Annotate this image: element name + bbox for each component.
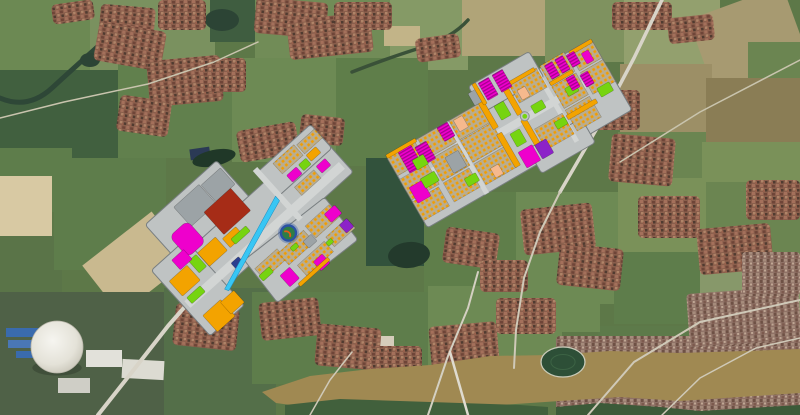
stadium-infield — [551, 355, 575, 370]
village-area — [334, 2, 392, 30]
terrain-patch — [86, 350, 122, 367]
village-area — [158, 0, 206, 30]
satellite-map-canvas[interactable] — [0, 0, 800, 415]
village-area — [496, 298, 556, 334]
village-area — [116, 95, 173, 138]
village-area — [667, 14, 715, 45]
terrain-patch — [0, 176, 52, 240]
satellite-map-view[interactable] — [0, 0, 800, 415]
village-area — [746, 180, 800, 220]
village-area — [612, 2, 672, 30]
village-area — [200, 58, 246, 92]
village-area — [480, 260, 528, 292]
terrain-patch — [706, 78, 800, 146]
dome-building — [31, 321, 83, 373]
village-area — [556, 243, 624, 291]
village-area — [638, 196, 700, 238]
urban-area — [742, 252, 800, 296]
terrain-patch — [58, 378, 90, 393]
village-area — [608, 133, 676, 186]
pond — [205, 9, 239, 31]
terrain-patch — [462, 0, 550, 56]
village-area — [258, 297, 322, 341]
